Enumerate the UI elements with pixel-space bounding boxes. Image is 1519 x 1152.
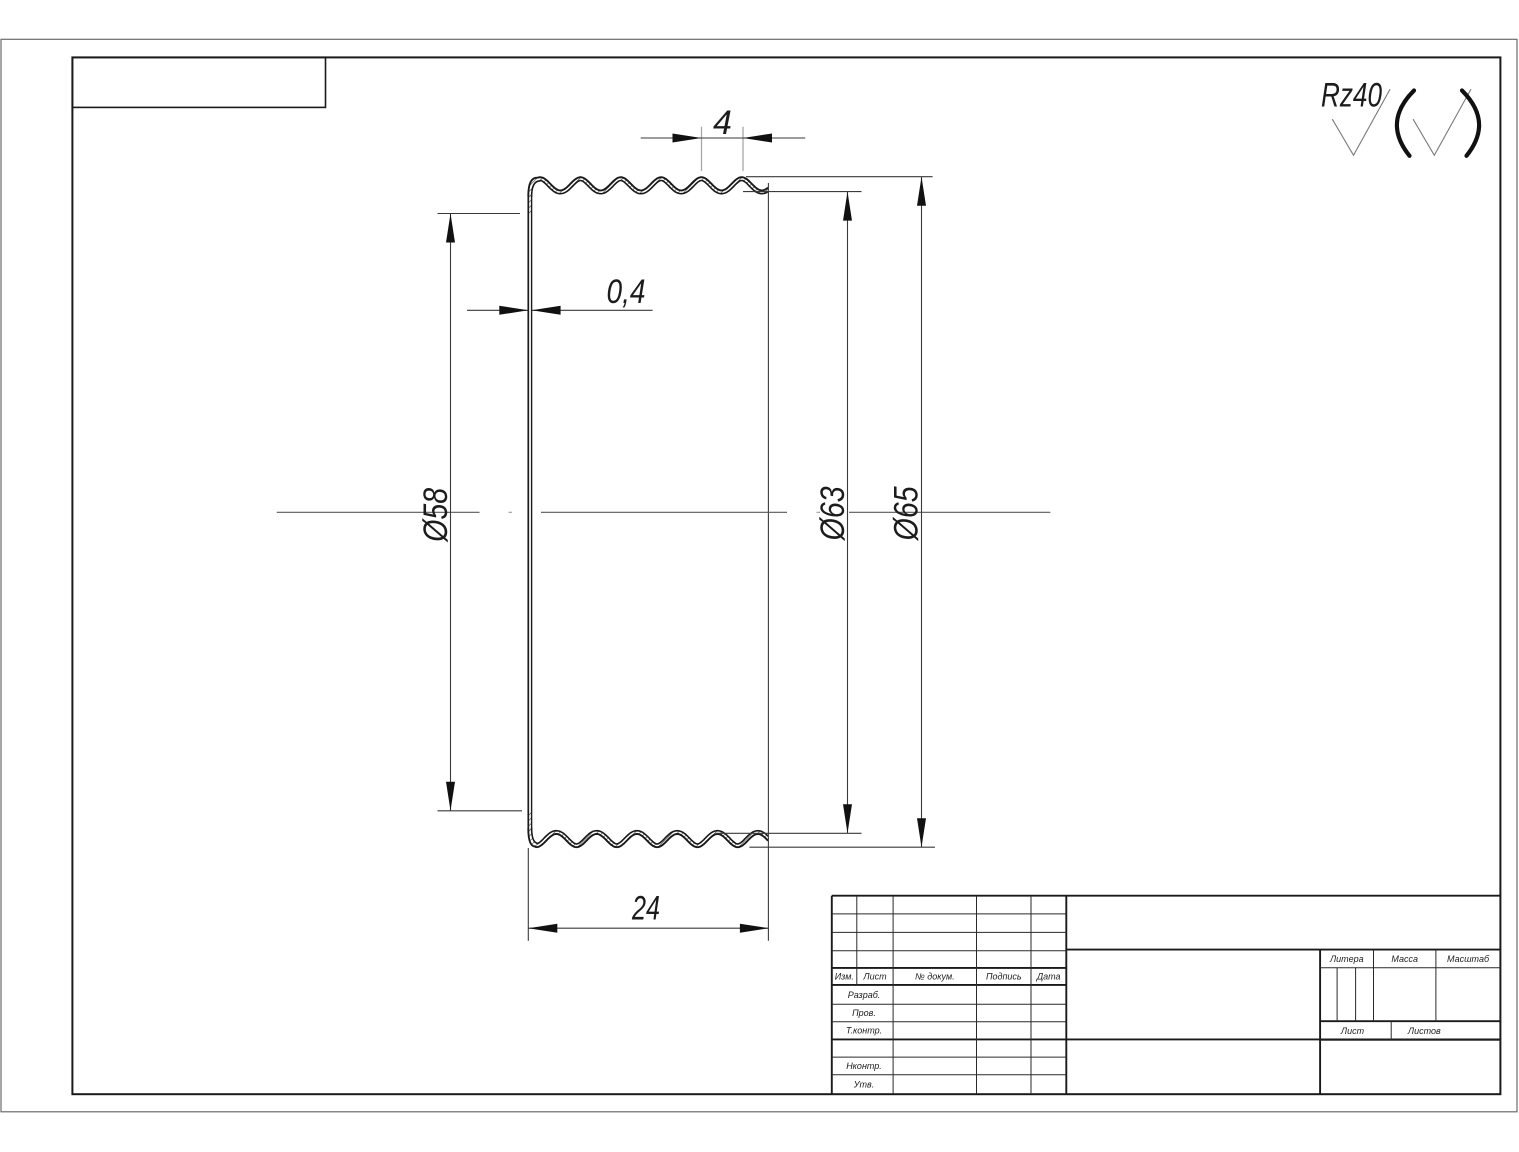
svg-text:Нконтр.: Нконтр. <box>846 1061 882 1071</box>
svg-text:Масштаб: Масштаб <box>1447 954 1490 964</box>
svg-text:Разраб.: Разраб. <box>848 990 881 1000</box>
svg-text:Лист: Лист <box>862 972 887 982</box>
svg-text:Т.контр.: Т.контр. <box>846 1025 882 1035</box>
svg-text:Ø63: Ø63 <box>814 486 852 541</box>
svg-text:Ø65: Ø65 <box>888 486 926 541</box>
svg-text:Пров.: Пров. <box>852 1008 876 1018</box>
svg-text:№ докум.: № докум. <box>915 972 955 982</box>
svg-text:Литера: Литера <box>1329 954 1364 964</box>
svg-text:Дата: Дата <box>1036 972 1061 982</box>
svg-text:0,4: 0,4 <box>607 273 646 311</box>
svg-text:Листов: Листов <box>1407 1026 1441 1036</box>
svg-text:4: 4 <box>713 104 732 142</box>
svg-text:Утв.: Утв. <box>853 1079 874 1089</box>
svg-text:Масса: Масса <box>1391 954 1418 964</box>
svg-text:Лист: Лист <box>1340 1026 1365 1036</box>
svg-text:Изм.: Изм. <box>835 972 854 982</box>
svg-text:24: 24 <box>631 890 660 928</box>
svg-text:Ø58: Ø58 <box>417 488 455 543</box>
svg-text:Rz40: Rz40 <box>1321 77 1382 115</box>
svg-text:Подпись: Подпись <box>986 972 1022 982</box>
